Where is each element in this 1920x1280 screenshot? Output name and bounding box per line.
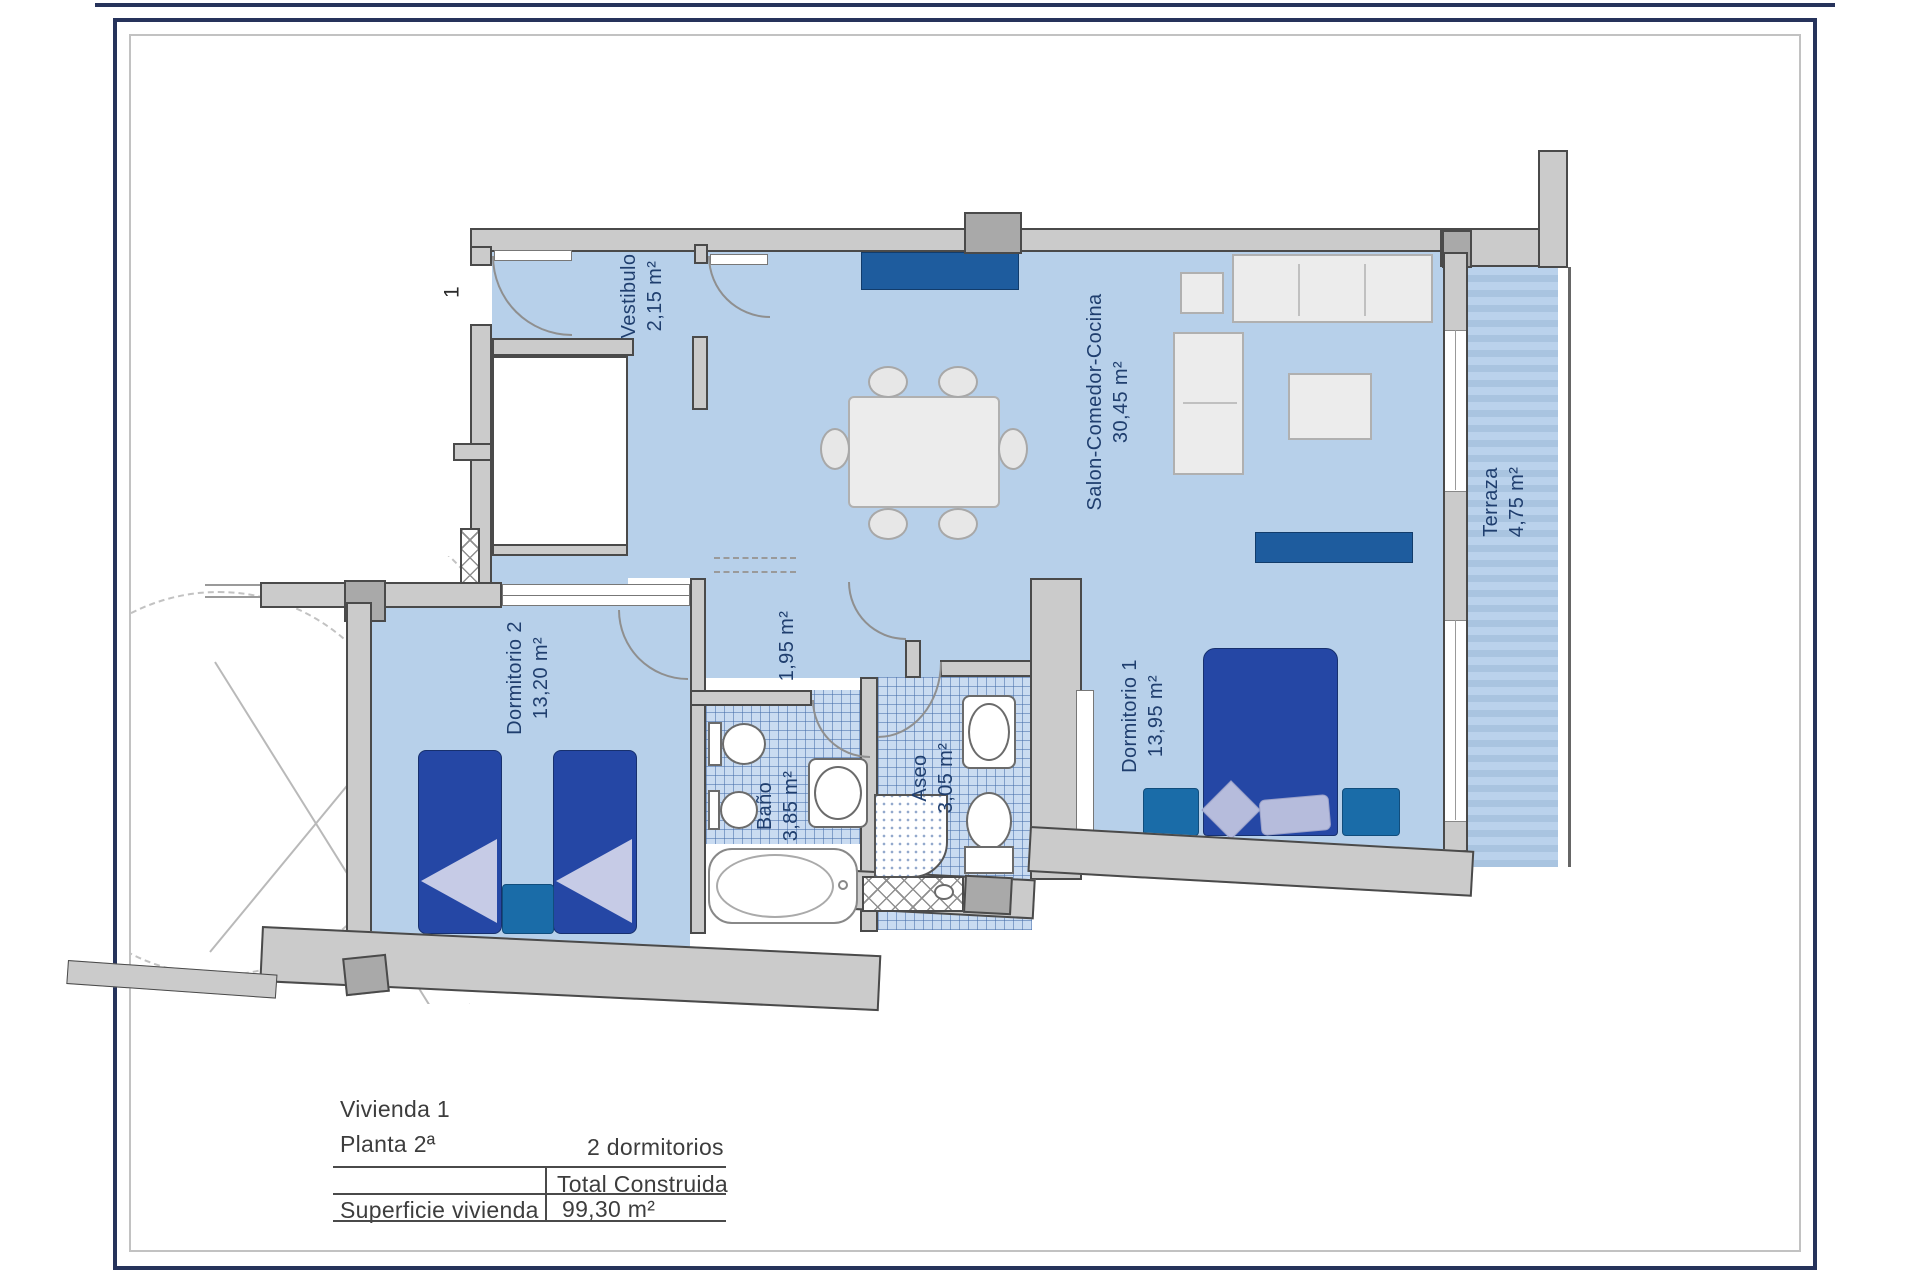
sofa-cushion-divider [1298,264,1300,316]
faucet [838,880,848,890]
sink-basin [814,766,862,820]
wall [690,578,706,934]
wall [346,602,372,968]
table-rule [333,1166,726,1168]
top-rule [95,3,1835,7]
blanket-fold [421,839,497,923]
sofa-cushion-divider [1364,264,1366,316]
patio-void [492,356,628,548]
window-line [1455,330,1456,490]
label-dormitorio1: Dormitorio 1 13,95 m² [1117,659,1169,773]
window-line [1455,620,1456,820]
open-passage [714,557,796,559]
table-rule [333,1193,726,1195]
room-area: 3,85 m² [778,771,804,842]
room-name: Salon-Comedor-Cocina [1084,294,1106,511]
chimney-column [1538,150,1568,268]
sofa-small [1173,332,1244,475]
bathtub-inner [716,854,834,918]
room-area: 1,95 m² [776,611,798,682]
dining-chair [868,508,908,540]
pillow [1259,794,1332,836]
unit-number-label: 1 [438,286,465,298]
nightstand [1342,788,1400,836]
wall-stub [453,443,492,461]
room-name: Terraza [1480,467,1502,537]
label-bano: Baño 3,85 m² [752,771,804,842]
room-area: 3,05 m² [933,743,959,814]
table-rule [333,1220,726,1222]
terraza-edge-line [1568,267,1571,867]
wall [692,336,708,410]
room-name: Vestibulo [618,254,640,339]
sofa-large [1232,254,1433,323]
drain-circle [934,884,954,900]
wardrobe-sliding-door [1076,690,1094,832]
room-area: 13,95 m² [1143,659,1169,773]
open-passage [714,571,796,573]
wall [492,544,628,556]
room-area: 4,75 m² [1504,467,1530,538]
room-name: Dormitorio 1 [1119,659,1141,773]
terraza-edge-gap [1558,267,1568,867]
wall [470,246,492,266]
dining-chair [938,508,978,540]
wall [694,244,708,264]
pillar [963,875,1013,915]
shaft-hatch [460,528,480,586]
floor-label: Planta 2ª [340,1131,436,1158]
coffee-table [1288,373,1372,440]
dining-chair [868,366,908,398]
floorplan-page: 1 Vestibulo 2,15 m² Salon-Comedor-Cocina… [0,0,1920,1280]
nightstand [1143,788,1199,836]
nightstand [502,884,554,934]
label-aseo: Aseo 3,05 m² [907,743,959,814]
room-name: Baño [754,782,776,830]
label-dormitorio2: Dormitorio 2 13,20 m² [502,621,554,735]
pillar [964,212,1022,254]
blanket-fold [556,839,632,923]
toilet-tank [708,722,722,766]
side-table [1180,272,1224,314]
room-terraza [1468,267,1560,867]
room-name: Dormitorio 2 [504,621,526,735]
room-area: 2,15 m² [642,254,668,339]
table-value: 99,30 m² [562,1196,655,1223]
wall [690,690,812,706]
wall [940,660,1032,677]
sink-basin [968,703,1010,761]
wall [470,228,1456,252]
dining-table [848,396,1000,508]
table-divider [545,1166,547,1222]
twin-bed [418,750,502,934]
dining-chair [938,366,978,398]
dwelling-title: Vivienda 1 [340,1096,450,1123]
room-name: Aseo [909,754,931,801]
pillow [1201,780,1260,839]
wardrobe-sliding-door [502,584,690,606]
room-salon-ext [628,350,700,578]
twin-bed [553,750,637,934]
label-salon: Salon-Comedor-Cocina 30,45 m² [1082,294,1134,511]
kitchen-counter [861,252,1019,290]
dining-chair [998,428,1028,470]
room-area: 30,45 m² [1108,294,1134,511]
sofa-cushion-divider [1183,402,1237,404]
dining-chair [820,428,850,470]
wall [492,338,634,356]
bedroom-count: 2 dormitorios [587,1134,724,1161]
label-terraza: Terraza 4,75 m² [1478,467,1530,538]
label-vestibulo: Vestibulo 2,15 m² [616,254,668,339]
pillar [342,954,390,996]
label-hall-area: 1,95 m² [774,611,800,682]
toilet-bowl [722,723,766,765]
bidet-tank [708,790,720,830]
room-area: 13,20 m² [528,621,554,735]
toilet-tank [964,846,1014,874]
tv-unit [1255,532,1413,563]
toilet-bowl [966,792,1012,850]
double-bed [1203,648,1338,836]
